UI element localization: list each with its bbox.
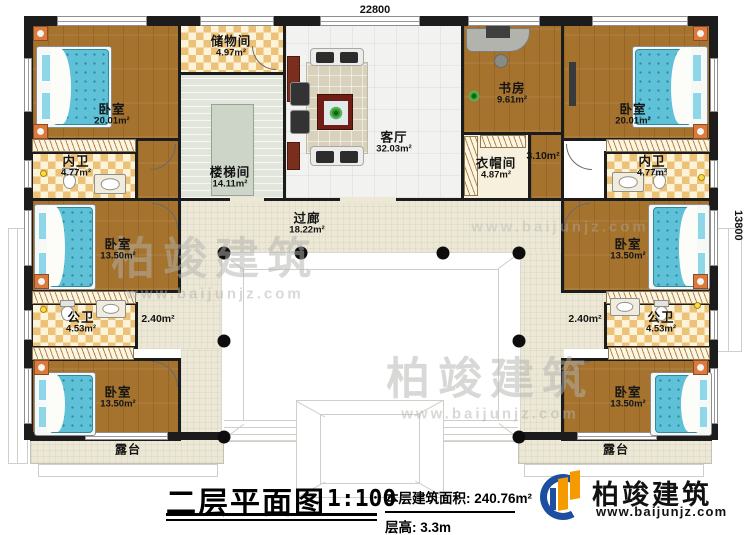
dimension-right: 13800 bbox=[732, 210, 744, 241]
bed-sheet bbox=[681, 374, 699, 432]
plant-icon bbox=[328, 105, 344, 121]
window bbox=[592, 16, 688, 26]
coffee-table bbox=[317, 94, 353, 130]
window bbox=[57, 16, 147, 26]
eave-lines-right bbox=[444, 420, 518, 442]
pillow bbox=[691, 91, 703, 121]
wardrobe-hatch bbox=[32, 139, 136, 152]
wall-lamp-icon bbox=[40, 170, 47, 177]
nightstand bbox=[33, 26, 48, 41]
nightstand bbox=[34, 274, 49, 289]
column bbox=[513, 431, 526, 444]
room-label-study: 书房9.61m² bbox=[497, 82, 527, 107]
sofa-cushion bbox=[340, 52, 358, 63]
room-label-bath-inner-right: 内卫4.77m² bbox=[637, 155, 667, 180]
meta-divider bbox=[385, 511, 515, 513]
roof-line-left bbox=[17, 228, 18, 464]
wall-lamp-icon bbox=[698, 174, 705, 181]
nightstand bbox=[693, 274, 708, 289]
bed bbox=[650, 372, 712, 436]
nightstand bbox=[693, 26, 708, 41]
sofa-cushion bbox=[316, 151, 334, 163]
sofa-cushion bbox=[340, 151, 358, 163]
room-label-bedroom-top-right: 卧室20.01m² bbox=[615, 103, 650, 128]
wall-tv bbox=[569, 62, 576, 106]
column bbox=[437, 247, 450, 260]
brand-logo-icon bbox=[540, 466, 592, 522]
wall-lamp-icon bbox=[40, 306, 47, 313]
window bbox=[320, 16, 420, 26]
nightstand bbox=[693, 360, 708, 375]
side-cabinet bbox=[287, 142, 300, 170]
nightstand bbox=[33, 124, 48, 139]
sofa bbox=[310, 146, 364, 166]
pillow bbox=[691, 53, 703, 83]
sofa-cushion bbox=[316, 52, 334, 63]
pillow bbox=[698, 378, 709, 402]
room-label-bedroom-mid-left: 卧室13.50m² bbox=[100, 238, 135, 263]
area-label-nook-left: 2.40m² bbox=[141, 314, 174, 326]
window bbox=[24, 310, 32, 340]
column bbox=[513, 247, 526, 260]
pillow bbox=[696, 211, 707, 241]
sink-basin bbox=[616, 302, 633, 312]
sink-icon bbox=[96, 300, 126, 318]
room-label-bath-inner-left: 内卫4.77m² bbox=[61, 155, 91, 180]
sink-basin bbox=[102, 304, 119, 314]
room-label-storage: 储物间4.97m² bbox=[211, 35, 252, 60]
window bbox=[200, 16, 274, 26]
bed-sheet bbox=[671, 48, 691, 124]
bed bbox=[34, 372, 96, 436]
plant-icon bbox=[468, 90, 480, 102]
window bbox=[468, 16, 540, 26]
cloak-shelf-hatch bbox=[480, 135, 526, 148]
nightstand bbox=[34, 360, 49, 375]
nightstand bbox=[693, 124, 708, 139]
window bbox=[24, 58, 32, 112]
window bbox=[24, 210, 32, 266]
eave-left bbox=[38, 464, 218, 477]
window bbox=[710, 210, 718, 266]
roof-line-right bbox=[728, 228, 729, 352]
logo-bar-orange bbox=[570, 470, 580, 500]
column bbox=[513, 335, 526, 348]
column bbox=[218, 335, 231, 348]
floor-area-row: 本层建筑面积: 240.76m² bbox=[385, 487, 532, 507]
door-arc bbox=[566, 144, 592, 170]
room-label-cloak: 衣帽间4.87m² bbox=[476, 157, 517, 182]
window bbox=[24, 368, 32, 424]
dimension-top: 22800 bbox=[340, 4, 410, 16]
window bbox=[24, 160, 32, 188]
window bbox=[710, 310, 718, 340]
room-label-stairwell: 楼梯间14.11m² bbox=[210, 166, 251, 191]
room-label-living: 客厅32.03m² bbox=[376, 131, 411, 156]
room-label-bath-public-left: 公卫4.53m² bbox=[66, 311, 96, 336]
room-label-bedroom-mid-right: 卧室13.50m² bbox=[610, 238, 645, 263]
hall-right bbox=[528, 132, 564, 201]
desk-chair bbox=[494, 54, 508, 68]
title-underline-2 bbox=[166, 519, 377, 521]
logo-bar-orange bbox=[558, 477, 568, 511]
window bbox=[85, 432, 168, 440]
courtyard-roof-outline bbox=[243, 269, 499, 421]
logo-bar-blue bbox=[550, 488, 556, 510]
eave-lines-left bbox=[224, 420, 298, 442]
corridor-floor-top bbox=[181, 198, 564, 255]
wardrobe-hatch bbox=[32, 347, 134, 360]
opening-stair bbox=[230, 197, 264, 203]
brand-website: www.baijunjz.com bbox=[596, 504, 727, 519]
room-label-bath-public-right: 公卫4.53m² bbox=[646, 311, 676, 336]
room-label-corridor: 过廊18.22m² bbox=[289, 212, 324, 237]
floor-height-row: 层高: 3.3m bbox=[385, 516, 451, 535]
window bbox=[577, 432, 657, 440]
sink-basin bbox=[101, 178, 120, 190]
room-label-bedroom-bottom-left: 卧室13.50m² bbox=[100, 386, 135, 411]
column bbox=[218, 247, 231, 260]
room-label-bedroom-top-left: 卧室20.01m² bbox=[94, 103, 129, 128]
floor-plan-canvas: 22800 13800 bbox=[0, 0, 750, 535]
wardrobe-hatch bbox=[608, 347, 710, 360]
computer-icon bbox=[486, 26, 510, 38]
pillow bbox=[698, 405, 709, 429]
sink-icon bbox=[94, 174, 126, 194]
wall-lamp-icon bbox=[694, 302, 701, 309]
window bbox=[710, 58, 718, 112]
armchair bbox=[290, 82, 310, 106]
title-underline bbox=[166, 513, 377, 516]
area-label-nook-right: 2.40m² bbox=[568, 314, 601, 326]
armchair bbox=[290, 110, 310, 134]
label-terrace-right: 露台 bbox=[603, 443, 629, 456]
sofa bbox=[310, 48, 364, 66]
label-terrace-left: 露台 bbox=[115, 443, 141, 456]
window bbox=[710, 160, 718, 188]
sink-basin bbox=[619, 176, 638, 188]
area-label-hall-right: 3.10m² bbox=[526, 151, 559, 163]
sink-icon bbox=[610, 298, 640, 316]
entry-roof-ridge bbox=[320, 414, 420, 484]
room-label-bedroom-bottom-right: 卧室13.50m² bbox=[610, 386, 645, 411]
column bbox=[295, 247, 308, 260]
column bbox=[218, 431, 231, 444]
wardrobe-hatch bbox=[606, 139, 710, 152]
opening-living bbox=[340, 197, 396, 203]
